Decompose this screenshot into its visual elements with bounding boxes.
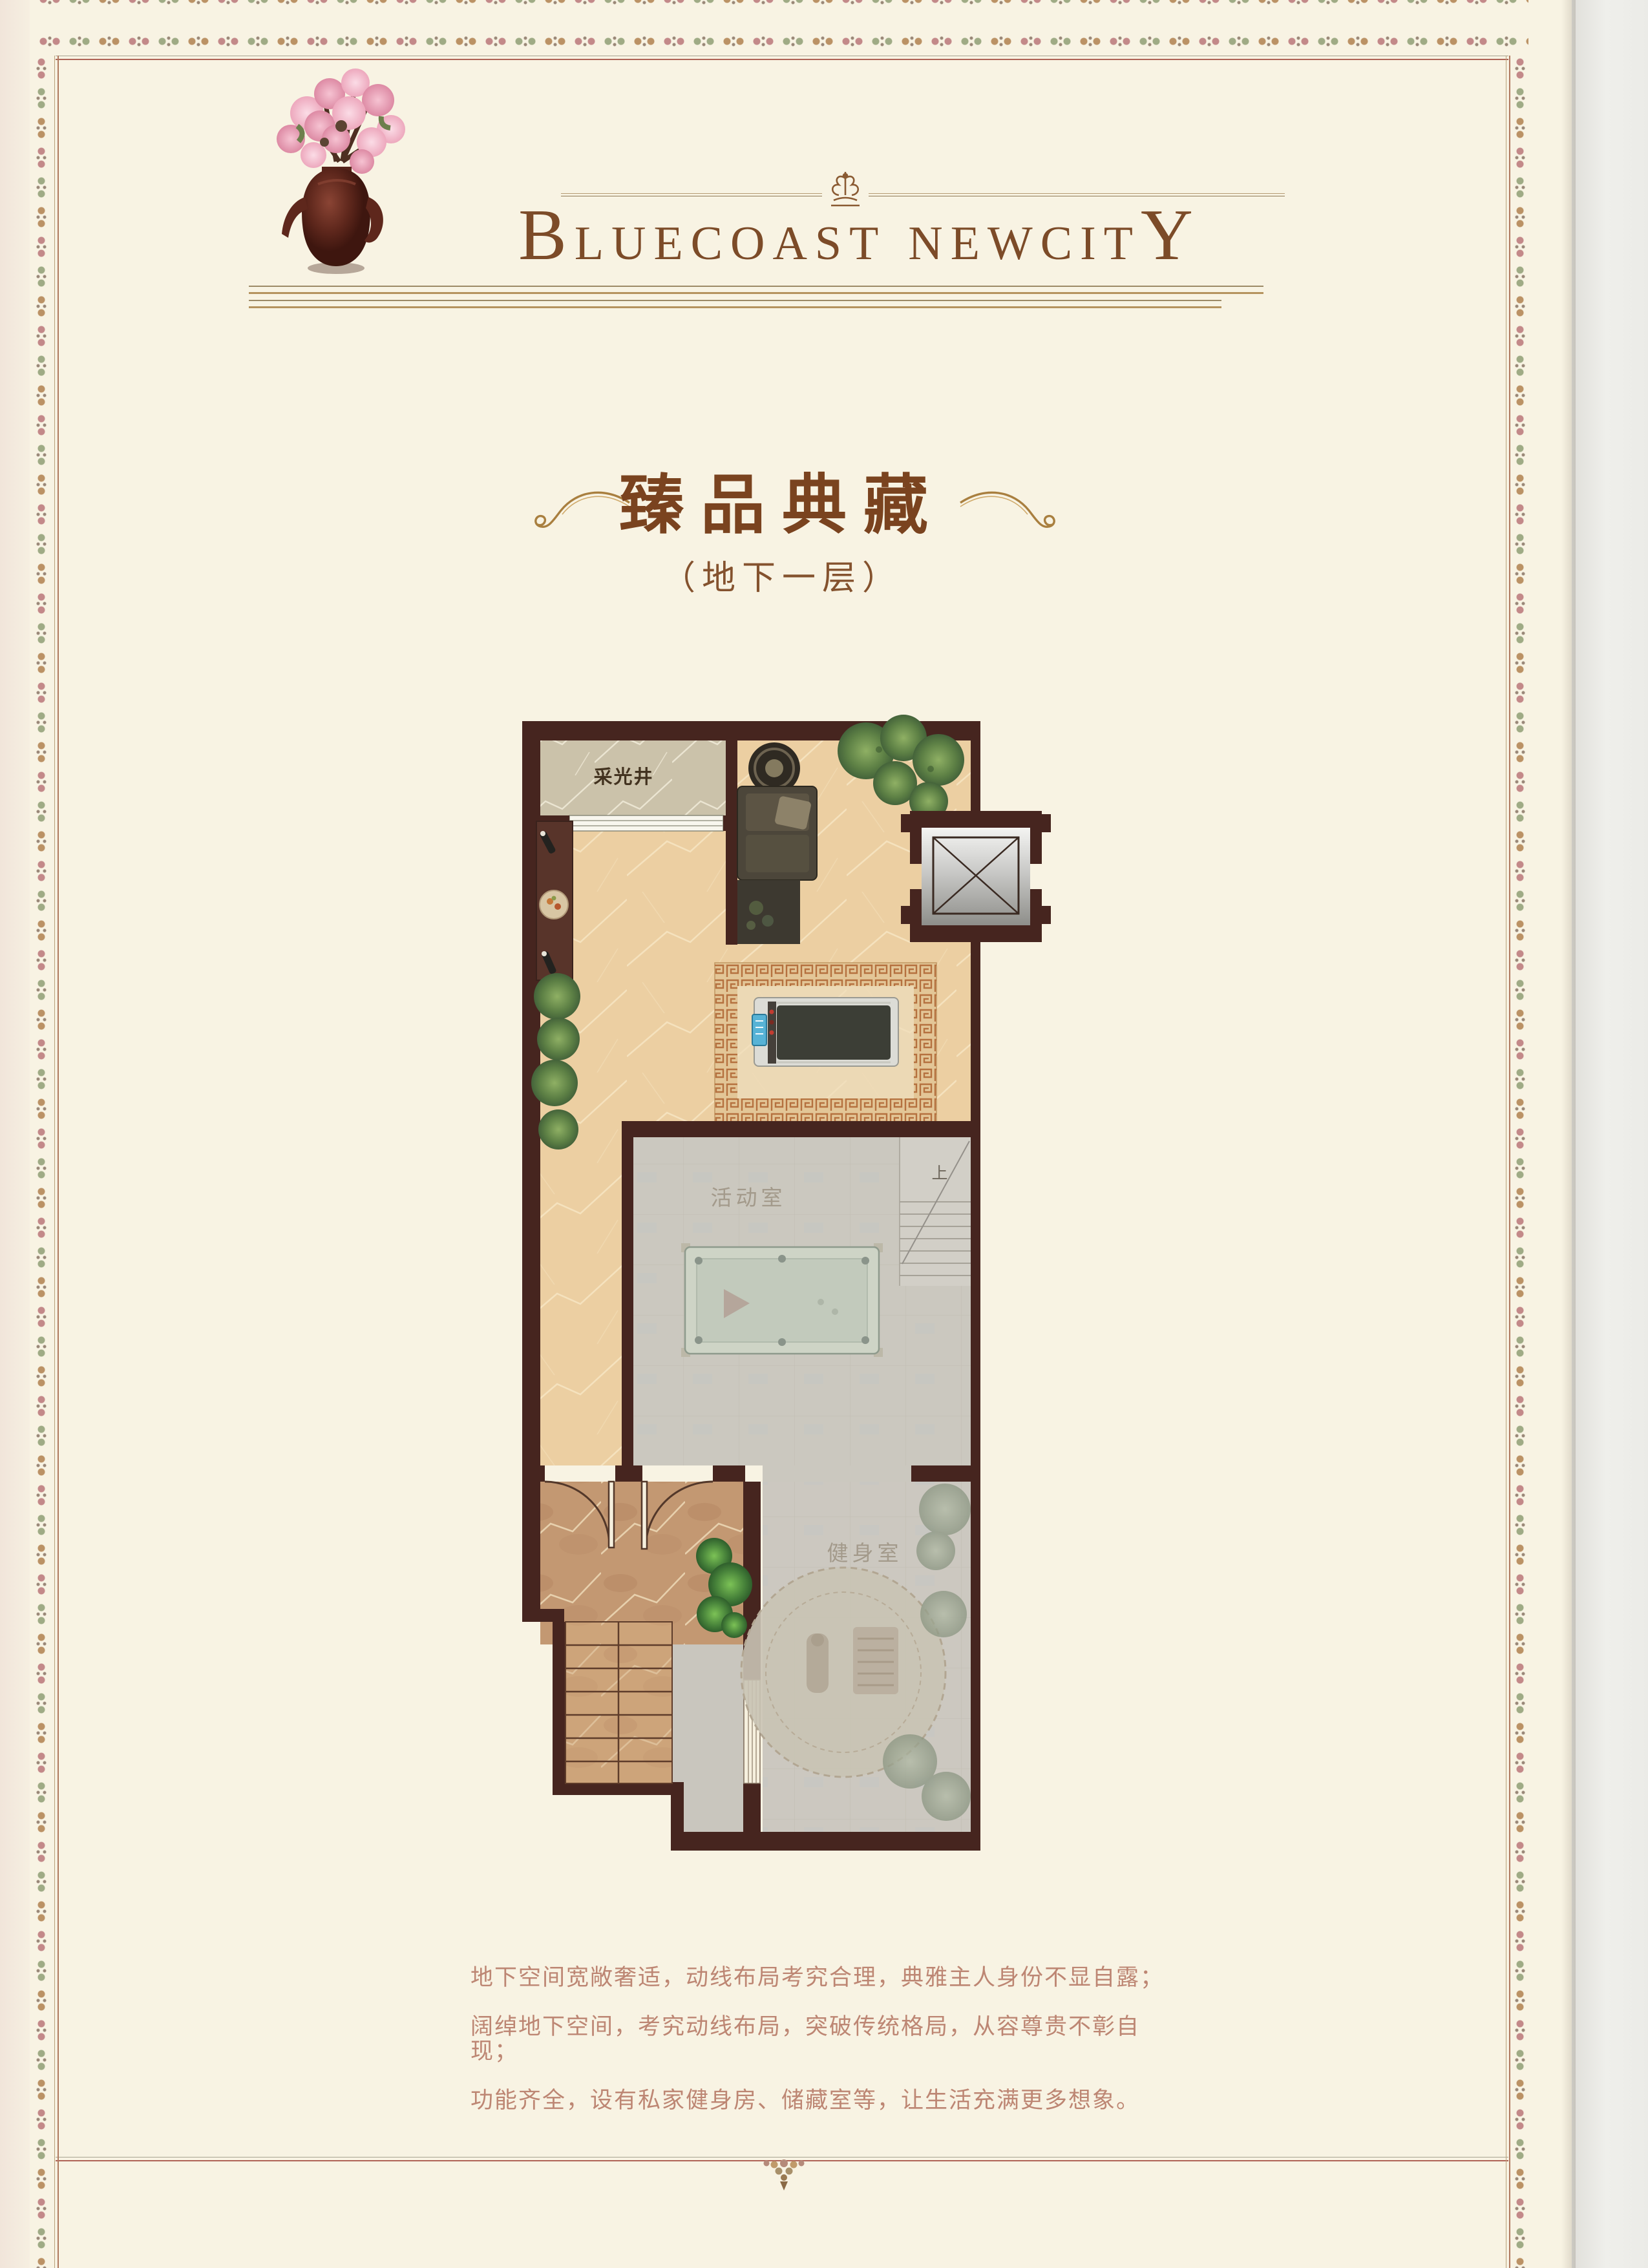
billiard-table-icon — [681, 1243, 883, 1357]
description-line: 地下空间宽敞奢适，动线布局考究合理，典雅主人身份不显自露； — [470, 1966, 1181, 1991]
description-line: 功能齐全，设有私家健身房、储藏室等，让生活充满更多想象。 — [470, 2088, 1181, 2114]
border-motif-left — [34, 54, 49, 2268]
brand-final: Y — [1141, 195, 1201, 275]
page-subtitle: （地下一层） — [55, 551, 1509, 599]
frame-line-left — [54, 56, 59, 2268]
scan-right-edge — [1572, 0, 1648, 2268]
floor-rug-icon — [737, 880, 800, 944]
border-motif-top — [36, 34, 1528, 49]
brand-part2: NEWCIT — [908, 217, 1141, 270]
teapot-icon — [282, 167, 383, 274]
brand-part1: LUECOAST — [575, 217, 886, 270]
room-label-light-well: 采光井 — [593, 766, 653, 788]
room-label-gym: 健身室 — [827, 1542, 903, 1566]
border-motif-right — [1512, 54, 1528, 2268]
border-motif-top-cut — [36, 0, 1528, 6]
bottom-drop-ornament-icon — [755, 2159, 813, 2198]
floor-plan: 采光井 活动室 健身室 — [517, 711, 1053, 1861]
sofa-icon — [737, 786, 817, 880]
brand-initial: B — [518, 195, 575, 275]
room-label-activity: 活动室 — [711, 1186, 787, 1210]
header-rule-left — [561, 193, 822, 196]
header-rule-right — [869, 193, 1285, 196]
bar-counter-icon — [536, 821, 573, 980]
frame-line-top — [56, 56, 1508, 60]
lower-stairs-icon — [565, 1622, 672, 1783]
stairs-up-label: 上 — [931, 1164, 947, 1182]
header-underline-2 — [249, 300, 1221, 308]
elevator-icon — [901, 811, 1051, 942]
upper-stairs-icon: 上 — [900, 1137, 971, 1286]
teapot-flowers-logo — [246, 65, 427, 284]
brand-title: BLUECOASTNEWCITY — [452, 199, 1267, 271]
scan-edge-shadow — [1561, 0, 1576, 2268]
description-line: 阔绰地下空间，考究动线布局，突破传统格局，从容尊贵不彰自现； — [470, 2015, 1181, 2064]
header-underline-1 — [249, 286, 1263, 294]
description-block: 地下空间宽敞奢适，动线布局考究合理，典雅主人身份不显自露； 阔绰地下空间，考究动… — [470, 1966, 1181, 2137]
page-left-edge — [0, 0, 30, 2268]
light-well-window — [569, 815, 723, 831]
treadmill-icon — [752, 998, 898, 1066]
blossom-cluster — [277, 68, 405, 174]
page-title: 臻品典藏 — [55, 452, 1509, 546]
frame-line-right — [1506, 56, 1510, 2268]
